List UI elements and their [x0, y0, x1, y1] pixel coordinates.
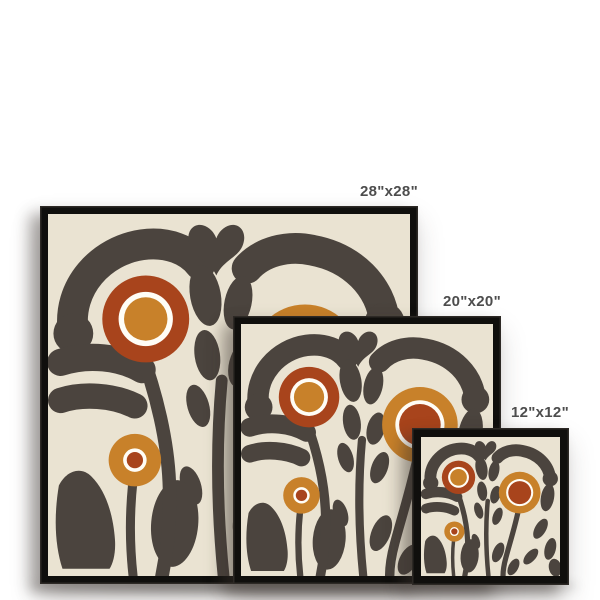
- art-print-12x12: [421, 437, 560, 576]
- size-label-20x20: 20"x20": [443, 293, 501, 310]
- flower-artwork: [421, 437, 560, 576]
- size-label-28x28: 28"x28": [360, 183, 418, 200]
- product-size-mockup: 28"x28" 20"x20" 12"x12": [0, 0, 600, 600]
- size-label-12x12: 12"x12": [511, 404, 569, 421]
- frame-12x12: [412, 428, 569, 585]
